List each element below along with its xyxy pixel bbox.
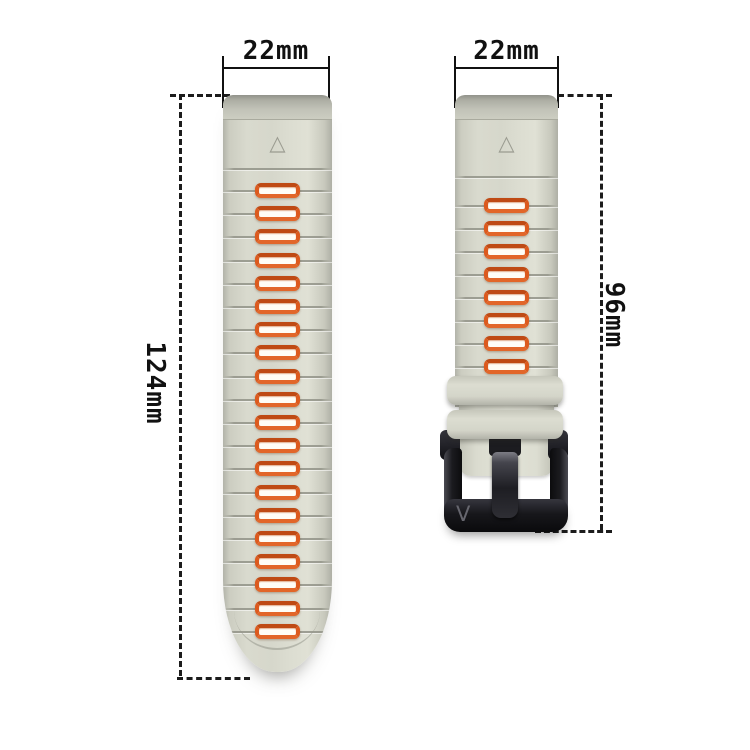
buckle-prong xyxy=(492,452,518,518)
strap-keeper-loop xyxy=(447,376,563,405)
strap-hole xyxy=(484,198,529,213)
strap-hole xyxy=(255,577,300,592)
left-length-dimension-label: 124mm xyxy=(140,341,170,424)
strap-hole xyxy=(255,461,300,476)
strap-hole xyxy=(255,253,300,268)
strap-hole xyxy=(255,508,300,523)
left-width-dimension-line xyxy=(223,67,329,69)
strap-hole xyxy=(255,299,300,314)
right-strap-holes xyxy=(455,95,558,407)
strap-hole xyxy=(255,392,300,407)
strap-hole xyxy=(255,601,300,616)
right-width-dimension-label: 22mm xyxy=(454,36,559,66)
right-strap: △ xyxy=(455,95,558,407)
strap-hole xyxy=(255,206,300,221)
right-length-extension-top xyxy=(558,94,612,97)
left-strap: △ xyxy=(223,95,332,672)
strap-keeper-loop xyxy=(447,410,563,439)
strap-hole xyxy=(255,438,300,453)
right-length-dimension-label: 96mm xyxy=(599,282,629,349)
strap-hole xyxy=(255,229,300,244)
strap-hole xyxy=(255,369,300,384)
left-strap-holes xyxy=(223,95,332,672)
strap-hole xyxy=(255,183,300,198)
strap-hole xyxy=(255,322,300,337)
strap-hole xyxy=(255,415,300,430)
strap-hole xyxy=(255,531,300,546)
left-length-extension-bottom xyxy=(177,677,250,680)
strap-hole xyxy=(255,554,300,569)
strap-hole xyxy=(484,313,529,328)
strap-hole xyxy=(484,359,529,374)
strap-hole xyxy=(484,290,529,305)
strap-hole xyxy=(484,244,529,259)
buckle-logo: V xyxy=(456,502,470,526)
watch-band-dimension-image: 22mm 22mm 124mm 96mm △ △ V xyxy=(0,0,750,750)
strap-hole xyxy=(255,276,300,291)
strap-hole xyxy=(484,336,529,351)
right-width-dimension-line xyxy=(455,67,558,69)
left-width-dimension-label: 22mm xyxy=(223,36,329,66)
strap-hole xyxy=(255,624,300,639)
strap-hole xyxy=(255,485,300,500)
strap-hole xyxy=(484,267,529,282)
strap-hole xyxy=(484,221,529,236)
strap-hole xyxy=(255,345,300,360)
left-length-dimension-line xyxy=(179,94,182,676)
